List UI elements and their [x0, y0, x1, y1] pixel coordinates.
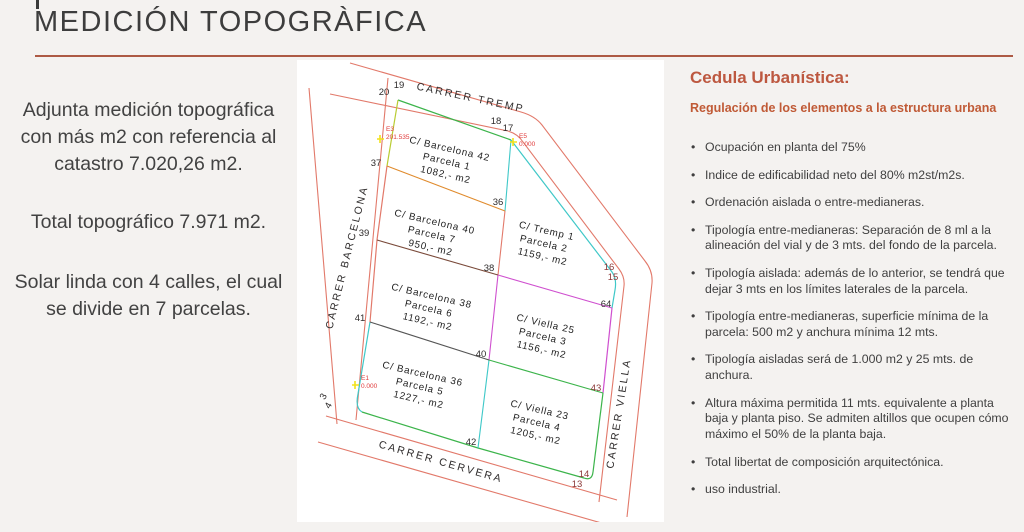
parcel-label-3: C/ Viella 25 Parcela 3 1156,- m2	[509, 312, 579, 362]
vertex-37: 37	[371, 158, 382, 169]
vertex-20: 20	[379, 87, 390, 98]
vertex-42: 42	[466, 437, 477, 448]
page-title: MEDICIÓN TOPOGRÀFICA	[34, 6, 427, 39]
slide: MEDICIÓN TOPOGRÀFICA Adjunta medición to…	[0, 0, 1024, 532]
vertex-36: 36	[493, 197, 504, 208]
vertex-13: 13	[572, 479, 583, 490]
vertex-17: 17	[503, 123, 514, 134]
regulations-subheading: Regulación de los elementos a la estruct…	[690, 101, 1010, 115]
regulations-panel: Cedula Urbanística: Regulación de los el…	[664, 60, 1024, 532]
regulation-item: Altura máxima permitida 11 mts. equivale…	[690, 396, 1010, 443]
vertex-15: 15	[608, 272, 619, 283]
parcel-label-4: C/ Viella 23 Parcela 4 1205,- m2	[503, 398, 573, 448]
vertex-4: 4	[323, 401, 335, 411]
regulation-item: Ocupación en planta del 75%	[690, 140, 1010, 156]
parcel-label-6: C/ Barcelona 38 Parcela 6 1192,- m2	[384, 282, 476, 337]
regulation-item: Ordenación aislada o entre-medianeras.	[690, 195, 1010, 211]
summary-paragraph-3: Solar linda con 4 calles, el cual se div…	[8, 269, 289, 323]
regulation-item: Tipología entre-medianeras, superficie m…	[690, 309, 1010, 340]
regulations-list: Ocupación en planta del 75% Indice de ed…	[690, 140, 1010, 498]
vertex-numbers: 20 19 18 17 37 36 39 38 41 40 42 64 43 1…	[318, 80, 619, 490]
regulation-item: Tipología aislada: además de lo anterior…	[690, 266, 1010, 297]
vertex-43: 43	[591, 383, 602, 394]
survey-map: CARRER TREMP CARRER BARCELONA CARRER CER…	[297, 60, 664, 522]
summary-panel: Adjunta medición topográfica con más m2 …	[0, 60, 297, 322]
parcel-label-1: C/ Barcelona 42 Parcela 1 1082,- m2	[402, 135, 494, 190]
regulations-heading: Cedula Urbanística:	[690, 68, 1010, 88]
parcel-label-2: C/ Tremp 1 Parcela 2 1159,- m2	[512, 220, 579, 270]
vertex-64: 64	[601, 299, 612, 310]
vertex-18: 18	[491, 116, 502, 127]
survey-map-panel: CARRER TREMP CARRER BARCELONA CARRER CER…	[297, 60, 664, 522]
summary-paragraph-1: Adjunta medición topográfica con más m2 …	[8, 97, 289, 178]
vertex-41: 41	[355, 313, 366, 324]
vertex-38: 38	[484, 263, 495, 274]
regulation-item: Indice de edificabilidad neto del 80% m2…	[690, 168, 1010, 184]
regulation-item: Tipología aisladas será de 1.000 m2 y 25…	[690, 352, 1010, 383]
station-e1: E1 0.000	[361, 367, 378, 390]
vertex-19: 19	[394, 80, 405, 91]
vertex-3: 3	[318, 392, 330, 402]
station-e5: E5 0.000	[519, 125, 536, 148]
parcel-label-7: C/ Barcelona 40 Parcela 7 950,- m2	[387, 208, 479, 263]
accent-underline	[35, 55, 1013, 57]
regulation-item: uso industrial.	[690, 482, 1010, 498]
vertex-40: 40	[476, 349, 487, 360]
street-lines	[309, 63, 652, 522]
station-e3: E3 201.535	[386, 118, 410, 141]
vertex-39: 39	[359, 228, 370, 239]
regulation-item: Total libertat de composición arquitectó…	[690, 455, 1010, 471]
street-label-barcelona: CARRER BARCELONA	[323, 184, 370, 330]
regulation-item: Tipología entre-medianeras: Separación d…	[690, 223, 1010, 254]
summary-paragraph-2: Total topográfico 7.971 m2.	[8, 209, 289, 236]
street-label-tremp: CARRER TREMP	[415, 81, 525, 116]
parcel-label-5: C/ Barcelona 36 Parcela 5 1227,- m2	[375, 360, 467, 415]
